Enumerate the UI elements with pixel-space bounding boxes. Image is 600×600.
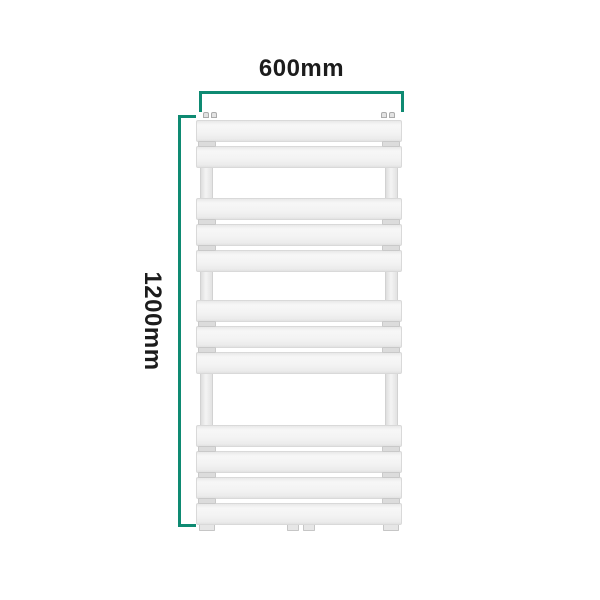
width-dimension-label: 600mm [199,55,404,83]
panel-connector [382,219,400,225]
radiator-foot-right [383,524,399,531]
height-dimension-label: 1200mm [138,271,166,370]
valve-connection [303,524,315,531]
panel-connector [198,446,216,452]
radiator-panel [196,451,402,473]
radiator-panel [196,425,402,447]
panel-connector [198,321,216,327]
panel-connector [198,245,216,251]
radiator-panel [196,503,402,525]
wall-mount-bracket [389,112,395,118]
product-dimension-diagram: 600mm 1200mm [0,0,600,600]
panel-connector [382,321,400,327]
towel-radiator-illustration [196,118,402,525]
wall-mount-bracket [211,112,217,118]
panel-connector [198,141,216,147]
radiator-panel [196,120,402,142]
radiator-panel [196,326,402,348]
panel-connector [198,347,216,353]
radiator-panel [196,250,402,272]
panel-connector [198,219,216,225]
panel-connector [382,498,400,504]
width-dimension-bracket [199,91,404,112]
valve-connection [287,524,299,531]
radiator-panel [196,352,402,374]
radiator-panel [196,477,402,499]
panel-connector [198,472,216,478]
wall-mount-bracket [203,112,209,118]
panel-connector [198,498,216,504]
radiator-panel [196,146,402,168]
panel-connector [382,446,400,452]
panel-connector [382,472,400,478]
radiator-panel [196,198,402,220]
panel-connector [382,141,400,147]
panel-connector [382,245,400,251]
panel-connector [382,347,400,353]
radiator-panel [196,300,402,322]
radiator-foot-left [199,524,215,531]
height-dimension-bracket [178,115,196,527]
radiator-panel [196,224,402,246]
wall-mount-bracket [381,112,387,118]
